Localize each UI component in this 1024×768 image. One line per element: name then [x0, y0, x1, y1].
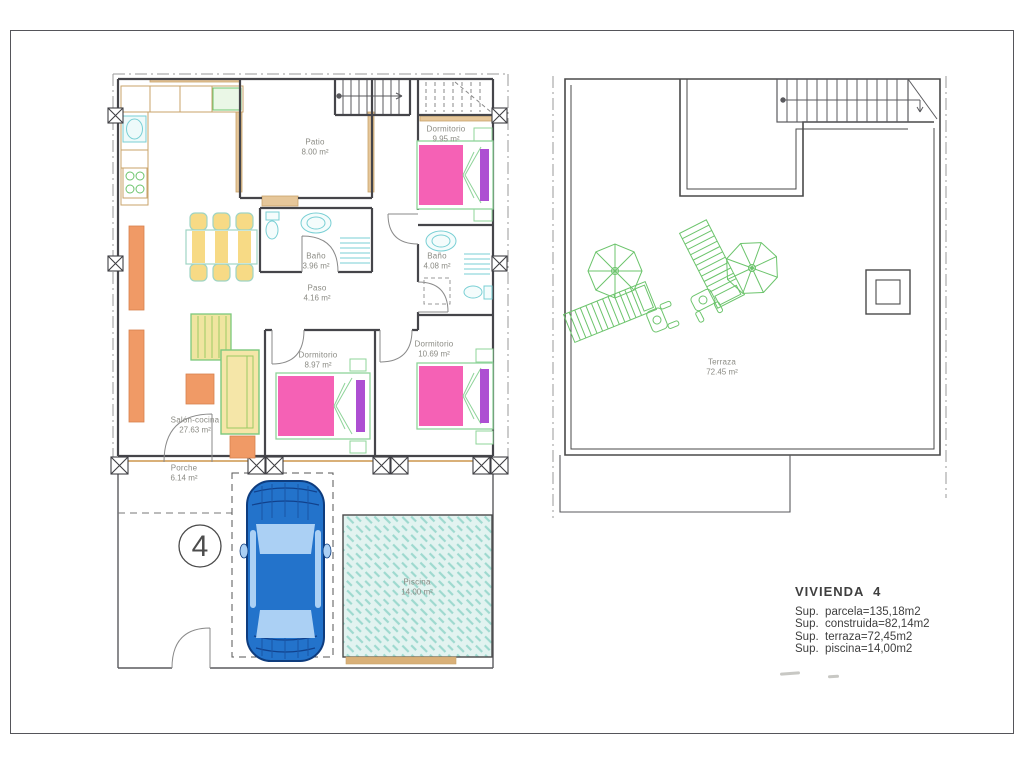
car-rear-window — [256, 610, 315, 638]
car-mirror — [240, 544, 248, 558]
kitchen-cabinet-green — [213, 88, 241, 110]
bed-dormitorio-1069 — [417, 349, 493, 444]
pillar — [473, 457, 490, 474]
room-label-patio: Patio 8.00 m² — [301, 138, 328, 157]
car — [240, 481, 331, 661]
room-area: 6.14 m² — [170, 473, 197, 483]
pillar — [108, 256, 123, 271]
stairs-above-dashed — [426, 82, 491, 112]
pillar — [108, 108, 123, 123]
side-table — [230, 436, 255, 458]
pillar — [492, 256, 507, 271]
room-label-salon-cocina: Salón-cocina 27.63 m² — [171, 416, 220, 435]
roof-stairs — [777, 79, 937, 122]
room-label-paso: Paso 4.16 m² — [303, 284, 330, 303]
room-area: 8.00 m² — [301, 147, 328, 157]
car-mirror — [323, 544, 331, 558]
terrace-furniture-left — [564, 244, 680, 342]
pillar — [391, 457, 408, 474]
summary-block: VIVIENDA 4 Sup. parcela=135,18m2 Sup. co… — [795, 584, 930, 655]
chair-icon — [688, 287, 723, 323]
pillar — [373, 457, 390, 474]
room-name: Piscina — [401, 578, 433, 588]
room-area: 14.00 m² — [401, 587, 433, 597]
room-area: 4.08 m² — [423, 261, 450, 271]
sideboard — [129, 330, 144, 422]
room-area: 3.96 m² — [302, 261, 329, 271]
room-name: Porche — [170, 464, 197, 474]
plan-sheet: Patio 8.00 m² Dormitorio 9.95 m² Baño 3.… — [0, 0, 1024, 768]
room-name: Paso — [303, 284, 330, 294]
room-name: Terraza — [706, 358, 738, 368]
room-name: Dormitorio — [299, 351, 338, 361]
car-windshield — [256, 524, 315, 554]
pillar — [492, 108, 507, 123]
pillar — [266, 457, 283, 474]
pillar — [491, 457, 508, 474]
chair-icon — [645, 301, 680, 335]
umbrella-icon — [717, 233, 786, 302]
room-area: 4.16 m² — [303, 293, 330, 303]
sun-lounger-icon — [564, 282, 657, 343]
room-name: Baño — [423, 252, 450, 262]
coffee-table — [186, 374, 214, 404]
summary-line-terraza: Sup. terraza=72,45m2 — [795, 631, 930, 643]
summary-line-construida: Sup. construida=82,14m2 — [795, 618, 930, 630]
room-area: 27.63 m² — [171, 425, 220, 435]
pillar — [111, 457, 128, 474]
interior-stairs — [337, 79, 402, 115]
bed-dormitorio-897 — [276, 359, 370, 453]
room-label-dormitorio-3: Dormitorio 10.69 m² — [415, 340, 454, 359]
roof-plan — [553, 76, 946, 518]
pencil-smudge — [828, 675, 839, 679]
summary-line-piscina: Sup. piscina=14,00m2 — [795, 643, 930, 655]
room-label-dormitorio-2: Dormitorio 8.97 m² — [299, 351, 338, 370]
ground-floor-plan — [108, 74, 508, 668]
pillar — [248, 457, 265, 474]
room-name: Salón-cocina — [171, 416, 220, 426]
summary-line-parcela: Sup. parcela=135,18m2 — [795, 606, 930, 618]
sun-lounger-icon — [680, 220, 745, 308]
room-area: 72.45 m² — [706, 367, 738, 377]
room-name: Patio — [301, 138, 328, 148]
umbrella-icon — [588, 244, 642, 298]
pool-edge-deck — [346, 657, 456, 664]
room-name: Dormitorio — [427, 125, 466, 135]
room-label-terraza: Terraza 72.45 m² — [706, 358, 738, 377]
kitchen — [121, 86, 243, 205]
dining-set — [186, 213, 257, 281]
sofa — [221, 350, 259, 434]
room-area: 10.69 m² — [415, 349, 454, 359]
room-area: 9.95 m² — [427, 134, 466, 144]
kitchen-sink — [123, 116, 146, 142]
sideboard — [129, 226, 144, 310]
room-label-porche: Porche 6.14 m² — [170, 464, 197, 483]
room-label-piscina: Piscina 14.00 m² — [401, 578, 433, 597]
unit-number: 4 — [192, 530, 209, 564]
room-name: Dormitorio — [415, 340, 454, 350]
lower-roof-strip — [560, 455, 790, 512]
room-label-dormitorio-1: Dormitorio 9.95 m² — [427, 125, 466, 144]
room-name: Baño — [302, 252, 329, 262]
summary-title: VIVIENDA 4 — [795, 584, 930, 599]
room-label-bano-2: Baño 4.08 m² — [423, 252, 450, 271]
room-label-bano-1: Baño 3.96 m² — [302, 252, 329, 271]
room-area: 8.97 m² — [299, 360, 338, 370]
chimney — [866, 270, 910, 314]
terrace-furniture-right — [680, 220, 787, 323]
